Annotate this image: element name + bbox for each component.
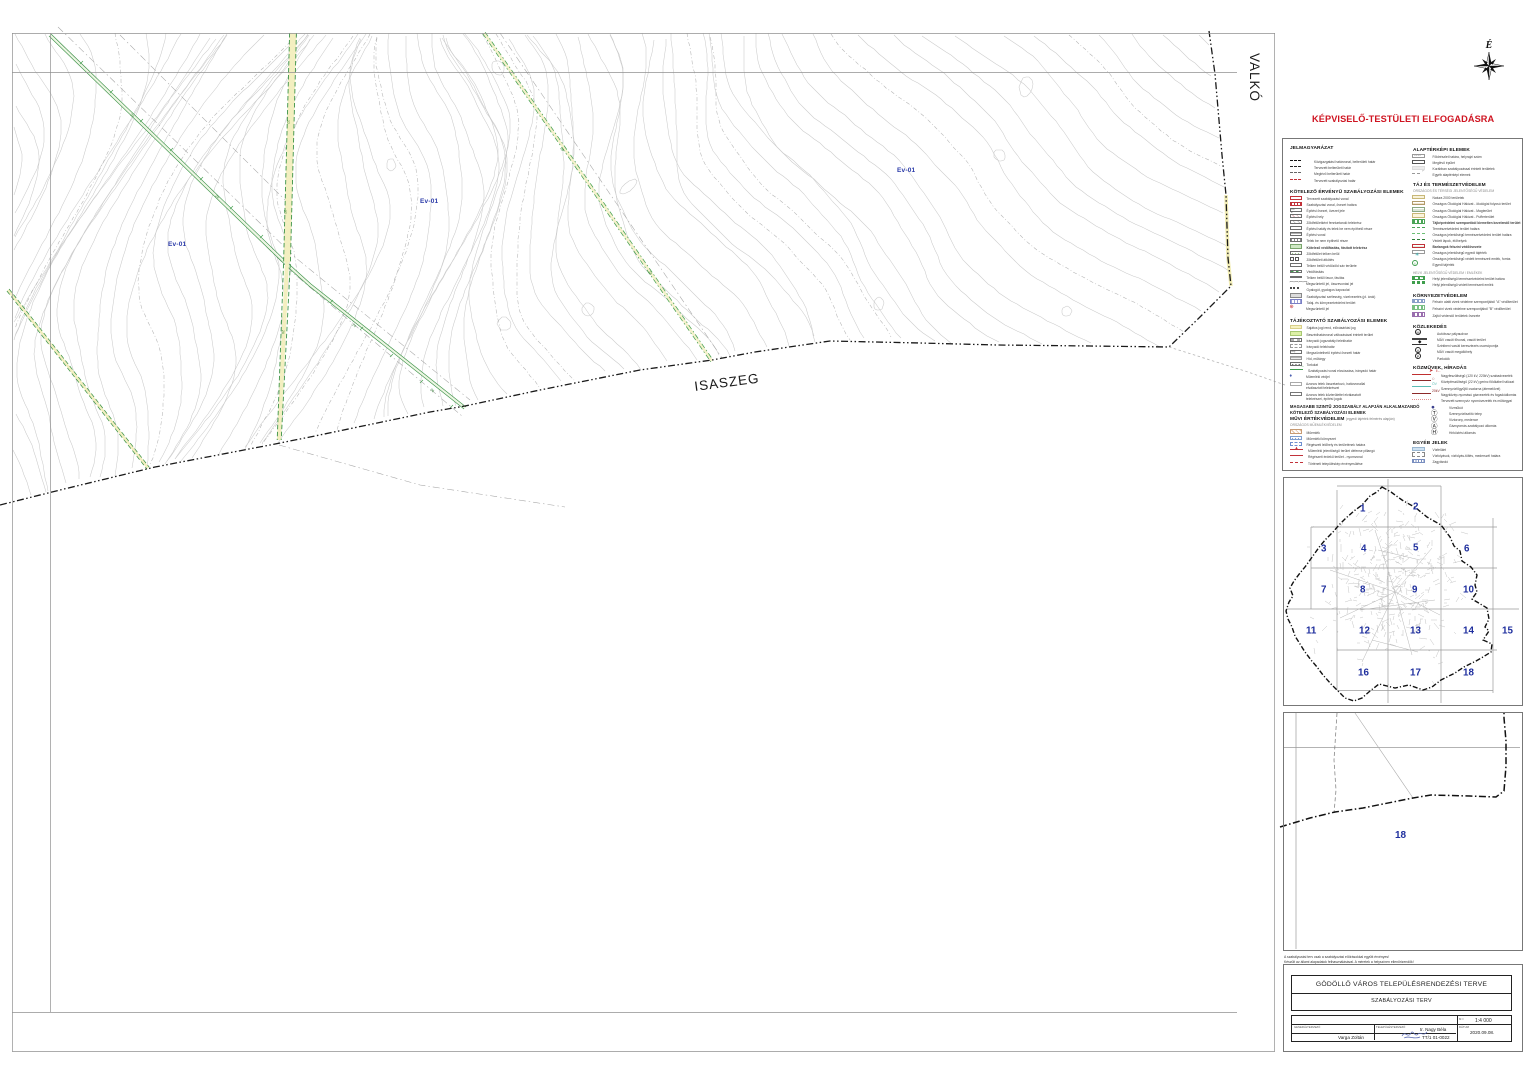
svg-text:2: 2: [1413, 502, 1419, 513]
svg-text:4: 4: [1361, 544, 1367, 555]
svg-text:6: 6: [1464, 544, 1470, 555]
svg-text:12: 12: [1359, 626, 1370, 637]
svg-text:7: 7: [1321, 585, 1327, 596]
svg-text:14: 14: [1463, 626, 1474, 637]
svg-text:5: 5: [1413, 543, 1419, 554]
svg-text:10: 10: [1463, 585, 1474, 596]
svg-text:3: 3: [1321, 544, 1327, 555]
svg-text:18: 18: [1463, 668, 1474, 679]
svg-text:11: 11: [1306, 626, 1317, 637]
svg-text:13: 13: [1410, 626, 1421, 637]
svg-text:16: 16: [1358, 668, 1369, 679]
svg-text:8: 8: [1360, 585, 1366, 596]
svg-text:9: 9: [1412, 585, 1418, 596]
svg-text:1: 1: [1360, 504, 1366, 515]
svg-text:17: 17: [1410, 668, 1421, 679]
svg-text:15: 15: [1502, 626, 1513, 637]
